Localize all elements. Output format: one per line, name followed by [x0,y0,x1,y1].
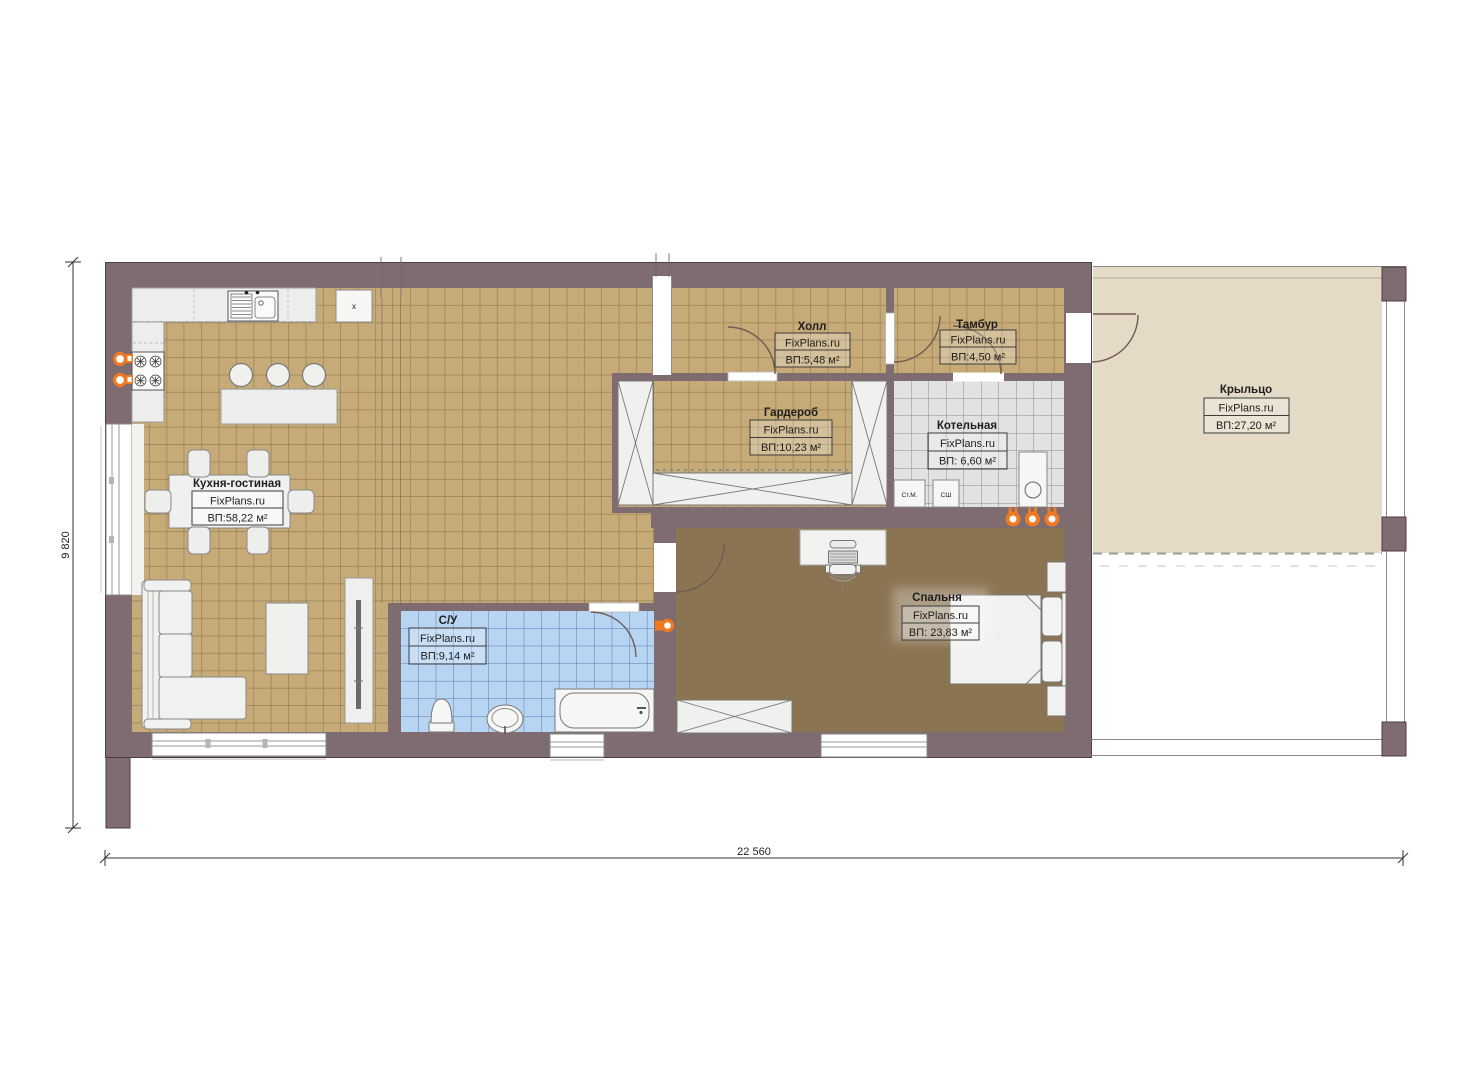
svg-text:FixPlans.ru: FixPlans.ru [913,610,968,622]
svg-text:ВП: 6,60 м²: ВП: 6,60 м² [939,456,996,468]
svg-text:Спальня: Спальня [912,592,962,604]
svg-text:FixPlans.ru: FixPlans.ru [210,496,265,508]
svg-text:ВП:58,22 м²: ВП:58,22 м² [207,513,267,525]
svg-text:Гардероб: Гардероб [764,407,818,419]
svg-text:ВП: 23,83 м²: ВП: 23,83 м² [909,627,973,639]
svg-text:FixPlans.ru: FixPlans.ru [950,335,1005,347]
svg-text:С/У: С/У [439,615,459,627]
svg-text:Тамбур: Тамбур [956,319,998,331]
svg-text:22 560: 22 560 [737,846,771,858]
svg-text:ВП:10,23 м²: ВП:10,23 м² [761,442,821,454]
svg-text:FixPlans.ru: FixPlans.ru [785,338,840,350]
svg-text:Котельная: Котельная [937,420,997,432]
svg-text:ВП:27,20 м²: ВП:27,20 м² [1216,420,1276,432]
svg-text:FixPlans.ru: FixPlans.ru [420,633,475,645]
svg-text:Кухня-гостиная: Кухня-гостиная [193,478,281,490]
svg-text:x: x [352,302,356,311]
svg-text:Крыльцо: Крыльцо [1220,384,1272,396]
svg-text:ВП:9,14 м²: ВП:9,14 м² [421,651,475,663]
svg-text:СШ: СШ [941,492,952,499]
svg-text:9 820: 9 820 [60,531,72,559]
svg-text:Холл: Холл [798,321,827,333]
svg-text:Ст.М.: Ст.М. [902,492,918,499]
svg-text:FixPlans.ru: FixPlans.ru [940,438,995,450]
svg-text:FixPlans.ru: FixPlans.ru [1218,403,1273,415]
svg-text:ВП:5,48 м²: ВП:5,48 м² [786,355,840,367]
svg-text:ВП:4,50 м²: ВП:4,50 м² [951,352,1005,364]
svg-text:FixPlans.ru: FixPlans.ru [763,425,818,437]
